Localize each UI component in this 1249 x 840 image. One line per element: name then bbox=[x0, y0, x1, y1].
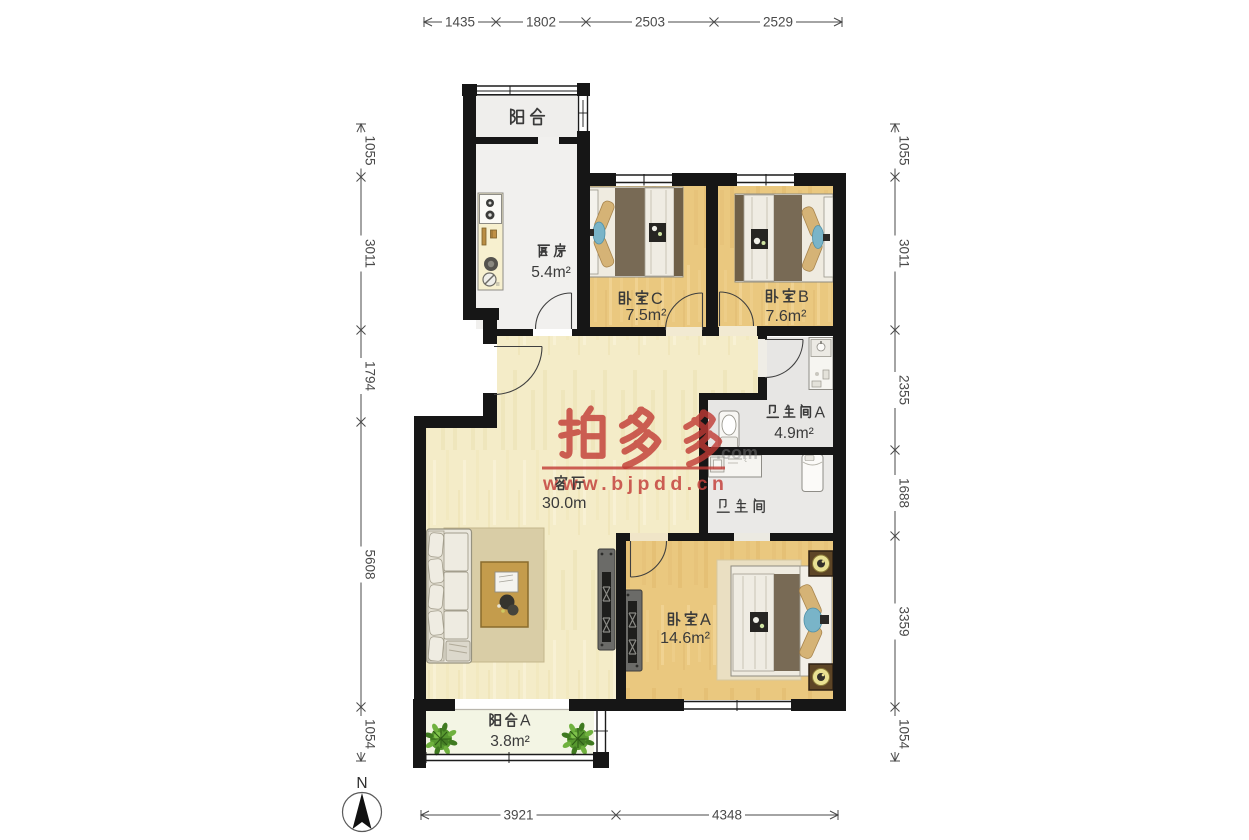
svg-text:1055: 1055 bbox=[897, 135, 912, 165]
svg-text:5608: 5608 bbox=[363, 549, 378, 579]
svg-text:A: A bbox=[815, 404, 826, 421]
svg-text:2529: 2529 bbox=[763, 15, 793, 30]
svg-text:3.8m²: 3.8m² bbox=[490, 733, 530, 750]
svg-text:3921: 3921 bbox=[503, 808, 533, 823]
svg-text:1435: 1435 bbox=[445, 15, 475, 30]
svg-text:2355: 2355 bbox=[897, 375, 912, 405]
svg-text:3359: 3359 bbox=[897, 606, 912, 636]
svg-text:1688: 1688 bbox=[897, 478, 912, 508]
svg-text:.com: .com bbox=[716, 443, 758, 463]
svg-text:4348: 4348 bbox=[712, 808, 742, 823]
svg-text:1055: 1055 bbox=[363, 135, 378, 165]
svg-text:3011: 3011 bbox=[363, 239, 378, 268]
svg-text:A: A bbox=[520, 712, 531, 729]
svg-text:1054: 1054 bbox=[363, 719, 378, 750]
svg-text:1802: 1802 bbox=[526, 15, 556, 30]
svg-text:3011: 3011 bbox=[897, 239, 912, 268]
svg-text:1054: 1054 bbox=[897, 719, 912, 750]
svg-text:5.4m²: 5.4m² bbox=[531, 264, 571, 281]
svg-text:1794: 1794 bbox=[363, 361, 378, 392]
svg-text:www.bjpdd.cn: www.bjpdd.cn bbox=[542, 473, 728, 495]
svg-text:2503: 2503 bbox=[635, 15, 665, 30]
svg-text:14.6m²: 14.6m² bbox=[660, 630, 710, 647]
svg-text:7.6m²: 7.6m² bbox=[766, 308, 808, 325]
svg-text:A: A bbox=[700, 611, 711, 629]
svg-text:||||: |||| bbox=[496, 282, 501, 286]
svg-text:N: N bbox=[356, 775, 367, 792]
svg-text:B: B bbox=[798, 288, 809, 306]
svg-text:30.0m: 30.0m bbox=[542, 495, 586, 512]
svg-text:7.5m²: 7.5m² bbox=[626, 307, 668, 324]
svg-text:C: C bbox=[651, 290, 663, 308]
svg-text:4.9m²: 4.9m² bbox=[774, 425, 814, 442]
